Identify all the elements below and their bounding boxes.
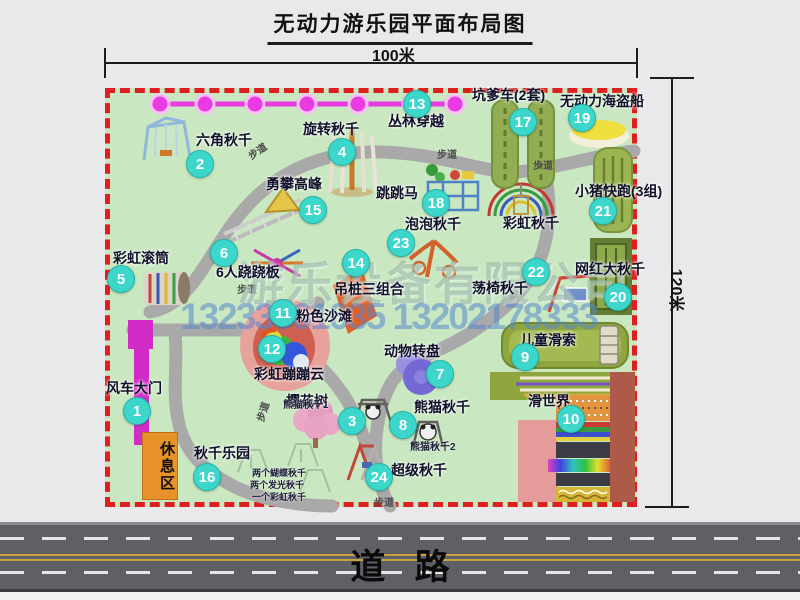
sub-label-2: 两个蝴蝶秋千 <box>252 469 306 479</box>
poi-marker-22: 22 <box>522 258 550 286</box>
poi-marker-11: 11 <box>269 299 297 327</box>
poi-marker-20: 20 <box>604 283 632 311</box>
poi-label-17: 坑爹车(2套) <box>472 88 545 103</box>
sub-label-0: 熊猫秋千1 <box>283 400 329 411</box>
walkway-label-3: 步道 <box>237 281 257 296</box>
dimension-tick-right-top <box>650 77 694 79</box>
poi-marker-2: 2 <box>186 150 214 178</box>
poi-label-24: 超级秋千 <box>391 463 447 478</box>
poi-label-4: 旋转秋千 <box>303 122 359 137</box>
dimension-tick-top-left <box>104 48 106 78</box>
road-label: 道 路 <box>0 539 800 590</box>
poi-marker-10: 10 <box>557 405 585 433</box>
dimension-tick-top-right <box>636 48 638 78</box>
poi-marker-19: 19 <box>568 104 596 132</box>
park-layout-plan: 无动力游乐园平面布局图 100米 120米 <box>0 0 800 600</box>
poi-marker-12: 12 <box>258 335 286 363</box>
road-shoulder <box>0 592 800 600</box>
poi-marker-23: 23 <box>387 229 415 257</box>
poi-label-2: 六角秋千 <box>196 133 252 148</box>
dimension-height-label: 120米 <box>666 260 690 320</box>
poi-marker-7: 7 <box>426 360 454 388</box>
walkway-label-2: 步道 <box>533 157 553 172</box>
rest-area-box: 休息区 <box>142 432 178 500</box>
poi-marker-17: 17 <box>509 108 537 136</box>
poi-label-12: 彩虹蹦蹦云 <box>254 367 324 382</box>
poi-marker-9: 9 <box>511 343 539 371</box>
poi-marker-14: 14 <box>342 249 370 277</box>
dimension-width-label: 100米 <box>372 42 415 66</box>
poi-marker-21: 21 <box>589 197 617 225</box>
map-label-0: 彩虹秋千 <box>503 216 559 231</box>
poi-marker-3: 3 <box>338 407 366 435</box>
walkway-label-5: 步道 <box>374 494 394 509</box>
dimension-tick-right-bottom <box>645 506 689 508</box>
poi-label-15: 勇攀高峰 <box>266 177 322 192</box>
park-boundary <box>105 88 637 507</box>
poi-marker-16: 16 <box>193 463 221 491</box>
poi-label-7: 动物转盘 <box>384 344 440 359</box>
poi-label-16: 秋千乐园 <box>194 446 250 461</box>
poi-label-11: 粉色沙滩 <box>296 309 352 324</box>
poi-label-14: 吊桩三组合 <box>334 282 404 297</box>
poi-label-8: 熊猫秋千 <box>414 400 470 415</box>
walkway-label-1: 步道 <box>437 146 457 161</box>
poi-label-21: 小猪快跑(3组) <box>575 184 662 199</box>
poi-label-20: 网红大秋千 <box>575 262 645 277</box>
poi-marker-18: 18 <box>422 189 450 217</box>
poi-label-22: 荡椅秋千 <box>472 281 528 296</box>
poi-marker-4: 4 <box>328 138 356 166</box>
dimension-line-top <box>105 62 637 64</box>
poi-marker-15: 15 <box>299 196 327 224</box>
poi-label-6: 6人跷跷板 <box>216 265 280 280</box>
poi-label-1: 风车大门 <box>106 381 162 396</box>
poi-label-23: 泡泡秋千 <box>405 217 461 232</box>
poi-marker-5: 5 <box>107 265 135 293</box>
sub-label-1: 熊猫秋千2 <box>410 442 456 453</box>
road: 道 路 <box>0 522 800 592</box>
sub-label-3: 两个发光秋千 <box>250 481 304 491</box>
poi-label-18: 跳跳马 <box>376 186 418 201</box>
poi-marker-13: 13 <box>403 90 431 118</box>
poi-marker-1: 1 <box>123 397 151 425</box>
poi-marker-6: 6 <box>210 239 238 267</box>
page-title: 无动力游乐园平面布局图 <box>268 8 533 45</box>
sub-label-4: 一个彩虹秋千 <box>252 493 306 503</box>
poi-marker-8: 8 <box>389 411 417 439</box>
poi-marker-24: 24 <box>365 463 393 491</box>
